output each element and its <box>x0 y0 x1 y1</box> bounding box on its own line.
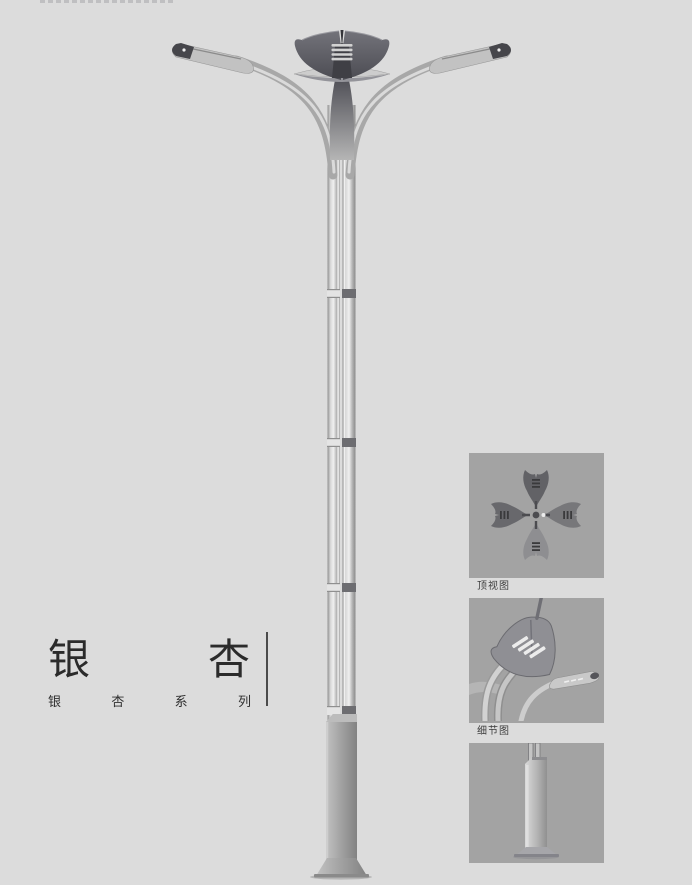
catalog-page: 银 杏 银 杏 系 列 <box>0 0 692 885</box>
title-divider-line <box>266 632 268 706</box>
panel-top-view: 顶视图 <box>469 453 604 598</box>
product-title: 银 杏 <box>48 638 250 682</box>
detail-panels: 顶视图 <box>469 453 604 863</box>
title-char: 杏 <box>208 638 250 682</box>
panel-detail-view: 细节图 <box>469 598 604 743</box>
title-char: 银 <box>48 638 90 682</box>
panel-base-view <box>469 743 604 863</box>
detail-view-image <box>469 598 604 723</box>
series-char: 杏 <box>111 691 124 710</box>
top-view-illustration <box>469 453 604 578</box>
product-series-label: 银 杏 系 列 <box>48 691 251 710</box>
series-char: 银 <box>48 691 61 710</box>
detail-view-caption: 细节图 <box>469 723 604 743</box>
series-char: 列 <box>238 691 251 710</box>
top-view-caption: 顶视图 <box>469 578 604 598</box>
top-view-image <box>469 453 604 578</box>
mast-tubes <box>328 105 356 720</box>
pole-base-section <box>310 714 372 880</box>
base-view-illustration <box>469 743 604 863</box>
series-char: 系 <box>175 691 188 710</box>
base-view-image <box>469 743 604 863</box>
detail-view-illustration <box>469 598 604 721</box>
